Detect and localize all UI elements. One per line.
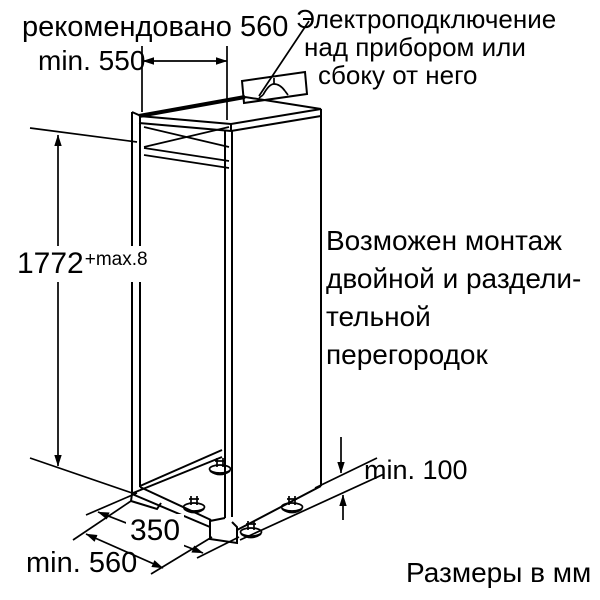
height-tolerance: +max.8 xyxy=(85,249,148,270)
label-inner-depth: 350 xyxy=(126,514,184,548)
foot-front-left xyxy=(184,496,205,513)
partition-note-line2: двойной и раздели- xyxy=(326,260,581,298)
partition-note-line3: тельной xyxy=(326,298,581,336)
label-min-depth: min. 560 xyxy=(26,547,137,580)
ceiling-rail xyxy=(144,148,229,168)
dimension-min100 xyxy=(240,437,384,540)
x-brace xyxy=(144,127,229,147)
installation-diagram-page: рекомендовано 560 min. 550 Электроподклю… xyxy=(0,0,600,600)
dimension-height-1772 xyxy=(30,128,137,493)
label-units-note: Размеры в мм xyxy=(406,557,591,589)
right-panel xyxy=(210,116,321,543)
label-electrical-line1: Электроподключение xyxy=(296,4,556,35)
label-min-clearance: min. 100 xyxy=(364,455,468,486)
label-electrical-line2: над прибором или xyxy=(304,32,526,63)
label-min-width: min. 550 xyxy=(38,45,145,77)
label-recommended-width: рекомендовано 560 xyxy=(22,11,288,44)
cabinet-outline xyxy=(131,97,321,543)
partition-note-line4: перегородок xyxy=(326,336,581,374)
partition-note-line1: Возможен монтаж xyxy=(326,222,581,260)
label-electrical-line3: сбоку от него xyxy=(318,60,477,91)
height-value: 1772 xyxy=(17,247,84,280)
top-panel xyxy=(139,97,321,131)
left-panel-edge xyxy=(132,112,141,494)
label-partition-note: Возможен монтаж двойной и раздели- тельн… xyxy=(326,222,581,374)
foot-rear-right xyxy=(282,496,303,513)
rear-floor-rail xyxy=(133,450,222,493)
label-height-dimension: 1772+max.8 xyxy=(14,246,150,282)
